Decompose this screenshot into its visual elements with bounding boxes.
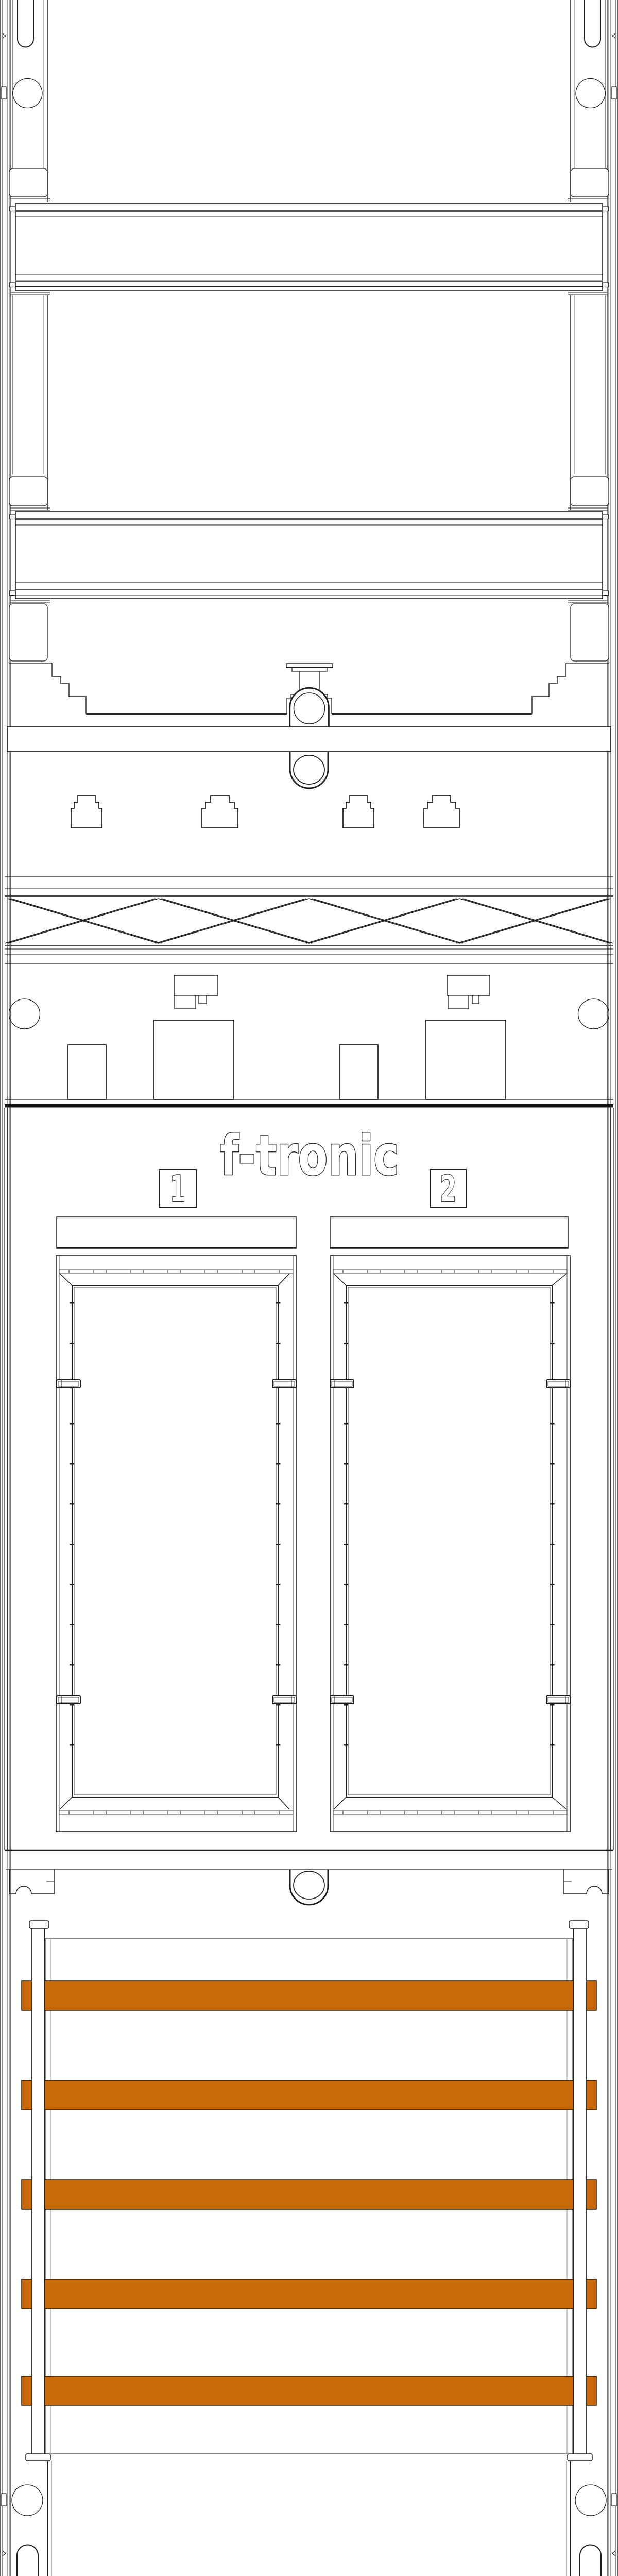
t-bolt [286,664,333,726]
window-clip [57,1380,80,1388]
rail-u-slot-top-left [18,0,33,47]
wall-arrow-top-right [612,33,615,38]
wall-arrow-bottom-right [612,2551,615,2556]
side-knockout-left [9,999,40,1029]
rail-u-slot-bottom-right [580,2545,601,2576]
mounting-rail-bottom-right [566,2461,606,2576]
window-clip [546,1380,570,1388]
component-block-right [447,975,490,1009]
busbar-4 [22,2279,596,2309]
side-knockout-right [578,999,609,1029]
brand-logo: f-tronic [220,1124,399,1188]
busbar-assembly [22,1921,596,2461]
busbar-3 [22,2180,596,2209]
rail-hole-bottom-right [575,2485,606,2516]
crossbar-top [10,204,608,290]
crossbar-second [10,512,608,599]
rail-hole-bottom-left [12,2485,43,2516]
meter-window-1 [56,1256,296,1832]
rail-box-lower-left [9,601,52,663]
keyhole-tab-upper [290,752,328,788]
support-pillar-narrow-right [339,1045,378,1099]
cover-strip [7,727,611,752]
wall-latch-top-left [2,87,6,99]
field-1-badge: 1 [159,1168,196,1210]
support-pillar-narrow-left [68,1045,106,1099]
rail-u-slot-top-right [585,0,600,47]
mounting-rail-top-right [568,0,609,202]
component-block-left [174,975,218,1009]
rail-box-lower-right [566,601,609,663]
hood-profile [52,663,566,726]
wall-latch-bottom-left [2,2494,6,2506]
rail-u-slot-bottom-left [17,2545,38,2576]
mounting-tabs [71,796,459,828]
bottom-bracket-left [10,1870,54,1894]
meter-cabinet-drawing: f-tronic 1 2 [0,0,618,2576]
mounting-rail-top-left [9,0,50,202]
keyhole-tab-lower [290,1870,328,1905]
window-clip [272,1380,296,1388]
label-window-2 [330,1217,568,1248]
mounting-rail-mid-left [9,292,50,510]
wall-latch-top-right [612,87,616,99]
busbar-2 [22,2080,596,2110]
busbar-1 [22,1981,596,2010]
window-clip [330,1696,354,1704]
busbar-5 [22,2376,596,2405]
window-clip [57,1696,80,1704]
wall-arrow-top-left [3,33,6,38]
window-clip [272,1696,296,1704]
label-window-1 [57,1217,296,1248]
support-pillar-wide-right [426,1020,506,1099]
wall-latch-bottom-right [612,2494,616,2506]
mounting-rail-mid-right [568,292,609,510]
upper-cabinet [5,752,613,1108]
vent-truss [5,895,613,946]
support-pillar-wide-left [154,1020,234,1099]
wall-arrow-bottom-left [3,2551,6,2556]
meter-window-2 [330,1256,570,1832]
field-1-label: 1 [170,1168,185,1210]
outer-wall-right [607,0,617,2576]
window-clip [330,1380,354,1388]
window-clip [546,1696,570,1704]
bottom-bracket-right [564,1870,608,1894]
front-panel: f-tronic 1 2 [5,1108,613,1869]
outer-wall-left [1,0,11,2576]
rail-hole-top-right [576,79,605,108]
t-bolt-dome [290,688,329,726]
field-2-label: 2 [440,1168,456,1210]
field-2-badge: 2 [430,1168,466,1210]
front-panel-top-edge [5,1104,613,1108]
mounting-rail-bottom-left [12,2461,51,2576]
rail-hole-top-left [13,79,42,108]
